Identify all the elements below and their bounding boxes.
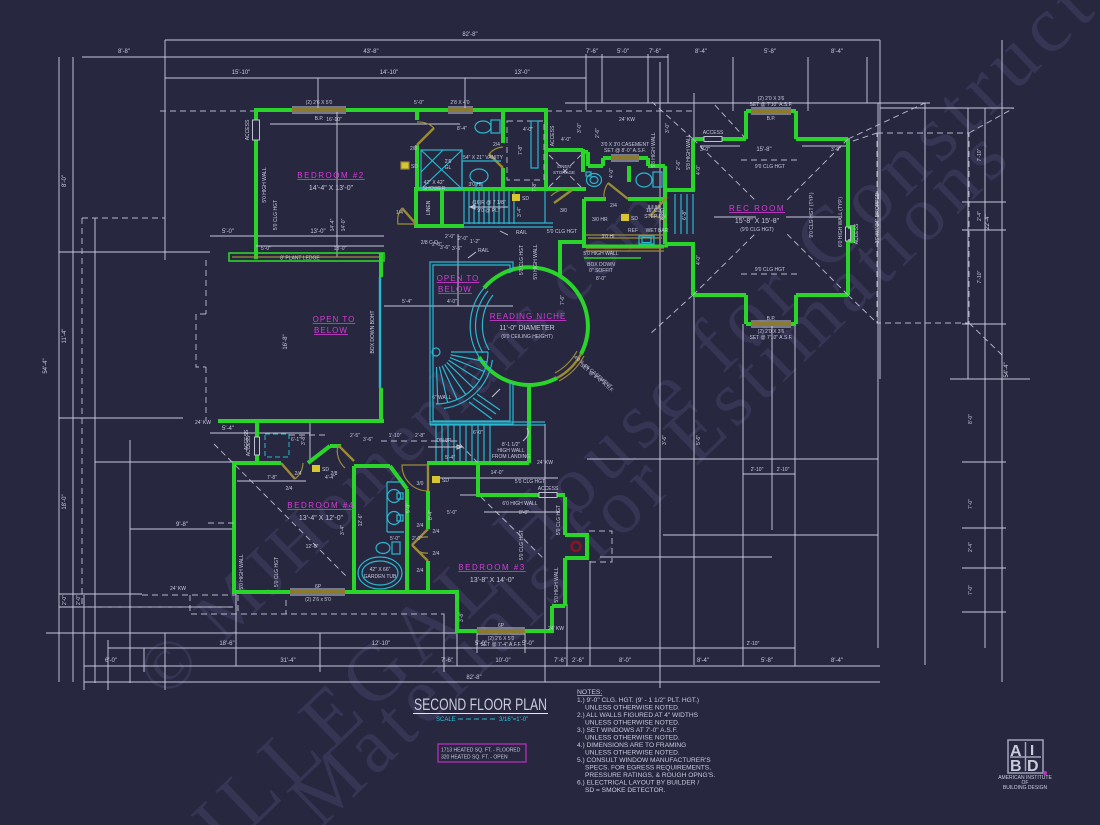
svg-text:(2) 2'6 X 5'0: (2) 2'6 X 5'0 (306, 100, 333, 106)
svg-text:7'-8": 7'-8" (267, 475, 277, 481)
svg-text:5'0 HIGH WALL: 5'0 HIGH WALL (533, 244, 539, 279)
svg-text:13'-4" X 12'-0": 13'-4" X 12'-0" (299, 515, 344, 522)
svg-text:11'-4": 11'-4" (62, 329, 68, 344)
svg-text:4'-0": 4'-0" (561, 137, 571, 143)
svg-text:8'-8": 8'-8" (519, 510, 529, 516)
svg-text:7'-8": 7'-8" (532, 182, 538, 192)
svg-text:7'-6": 7'-6" (649, 49, 661, 55)
svg-text:6'0 HIGH WALL: 6'0 HIGH WALL (502, 501, 537, 507)
svg-text:I: I (1030, 742, 1034, 759)
svg-text:5'0 CLG HGT: 5'0 CLG HGT (519, 530, 525, 560)
svg-text:1.) 9'-0" CLG. HGT. (9' - 1 1: 1.) 9'-0" CLG. HGT. (9' - 1 1/2" PLT. HG… (577, 697, 699, 704)
svg-text:B: B (1010, 758, 1022, 775)
svg-text:5'0 CLG HGT: 5'0 CLG HGT (273, 200, 279, 230)
svg-text:3/0 HR: 3/0 HR (592, 217, 608, 223)
svg-text:3'-6": 3'-6" (363, 437, 373, 443)
svg-text:UNLESS OTHERWISE NOTED.: UNLESS OTHERWISE NOTED. (585, 750, 680, 757)
svg-text:ACCESS: ACCESS (245, 119, 251, 140)
svg-text:4.) DIMENSIONS ARE TO FRAMING: 4.) DIMENSIONS ARE TO FRAMING (577, 742, 686, 749)
svg-text:(2) 2'6 x 5'0: (2) 2'6 x 5'0 (305, 597, 331, 603)
svg-text:7'-10": 7'-10" (977, 270, 983, 283)
svg-text:6'0 HIGH WALL (TYP.): 6'0 HIGH WALL (TYP.) (838, 197, 844, 248)
svg-text:5'0 CLG HGT: 5'0 CLG HGT (515, 479, 545, 485)
svg-text:7'-6": 7'-6" (586, 49, 598, 55)
svg-text:BELOW: BELOW (438, 285, 472, 294)
svg-text:(9'0 CLG HGT): (9'0 CLG HGT) (740, 227, 774, 233)
svg-text:24' KW: 24' KW (195, 420, 211, 426)
svg-text:2'-5": 2'-5" (350, 433, 360, 439)
svg-text:2'-6": 2'-6" (676, 160, 682, 170)
svg-text:WET BAR: WET BAR (646, 228, 669, 234)
svg-text:1713 HEATED SQ. FT. - FLOORED: 1713 HEATED SQ. FT. - FLOORED (441, 748, 521, 754)
svg-text:13'-0": 13'-0" (514, 70, 529, 76)
svg-text:SET @ 7'-4" A.F.F.: SET @ 7'-4" A.F.F. (480, 642, 521, 648)
svg-text:SD: SD (322, 467, 329, 473)
svg-text:5'0 HIGH WALL: 5'0 HIGH WALL (262, 167, 268, 202)
svg-text:82'-8": 82'-8" (466, 675, 481, 681)
svg-text:UNLESS OTHERWISE NOTED.: UNLESS OTHERWISE NOTED. (585, 735, 680, 742)
svg-text:GARDEN TUB: GARDEN TUB (364, 574, 397, 580)
svg-text:5'0 HIGH WALL: 5'0 HIGH WALL (554, 567, 560, 602)
svg-text:10'-0": 10'-0" (495, 658, 510, 664)
svg-text:9'-8": 9'-8" (176, 522, 188, 528)
svg-text:6P: 6P (315, 584, 322, 590)
svg-text:9'0 CLG HGT (TYP.): 9'0 CLG HGT (TYP.) (809, 192, 815, 238)
svg-text:1'-2": 1'-2" (470, 239, 480, 245)
svg-text:11'-0" DIAMETER: 11'-0" DIAMETER (499, 325, 554, 332)
svg-text:3'-6": 3'-6" (662, 435, 668, 445)
svg-text:22'-4": 22'-4" (985, 214, 991, 229)
svg-text:2'-4": 2'-4" (977, 211, 983, 221)
svg-text:15'-10": 15'-10" (232, 70, 251, 76)
svg-text:2'-6": 2'-6" (572, 658, 584, 664)
svg-text:8'-4": 8'-4" (428, 510, 434, 520)
svg-text:6'-8": 6'-8" (682, 210, 688, 220)
svg-text:15'-8": 15'-8" (756, 147, 771, 153)
svg-text:5'0 CLG HGT: 5'0 CLG HGT (547, 229, 577, 235)
svg-text:82'-8": 82'-8" (462, 32, 477, 38)
svg-text:B.P.: B.P. (315, 116, 324, 122)
svg-text:LINEN: LINEN (557, 164, 570, 169)
svg-text:ACCESS: ACCESS (244, 429, 250, 450)
svg-text:4'-0": 4'-0" (447, 299, 457, 305)
svg-text:READING NICHE: READING NICHE (490, 312, 567, 321)
svg-text:3'-8": 3'-8" (459, 612, 465, 622)
svg-text:5'-0": 5'-0" (617, 49, 629, 55)
svg-text:7'-0": 7'-0" (968, 499, 974, 509)
svg-text:14'-10": 14'-10" (380, 70, 399, 76)
svg-text:8'-0": 8'-0" (619, 658, 631, 664)
svg-text:BUILDING DESIGN: BUILDING DESIGN (1003, 785, 1048, 791)
svg-text:6'-0": 6'-0" (105, 658, 117, 664)
svg-text:B.P.: B.P. (767, 116, 776, 122)
svg-text:14'-4" X 13'-0": 14'-4" X 13'-0" (309, 185, 354, 192)
svg-text:REC ROOM: REC ROOM (729, 204, 785, 213)
svg-text:SD = SMOKE DETECTOR.: SD = SMOKE DETECTOR. (585, 787, 665, 794)
svg-text:5'-4": 5'-4" (222, 426, 234, 432)
svg-text:2'-10": 2'-10" (751, 467, 764, 473)
svg-text:24' KW: 24' KW (170, 586, 186, 592)
svg-text:9'0 CLG HGT: 9'0 CLG HGT (755, 164, 785, 170)
svg-text:BELOW: BELOW (314, 326, 348, 335)
svg-text:12'-10": 12'-10" (372, 641, 391, 647)
svg-text:6" WALL: 6" WALL (432, 395, 452, 401)
svg-text:6'-1": 6'-1" (291, 437, 301, 443)
svg-text:8'-8": 8'-8" (118, 49, 130, 55)
svg-text:13'-0": 13'-0" (334, 246, 347, 252)
svg-text:ACCESS: ACCESS (703, 130, 724, 136)
svg-text:4'-0": 4'-0" (523, 127, 533, 133)
svg-text:2'8 X 4'0: 2'8 X 4'0 (450, 100, 469, 106)
svg-text:54'-4": 54'-4" (1004, 362, 1010, 377)
svg-text:0" SOFFIT: 0" SOFFIT (589, 268, 613, 274)
svg-text:SD: SD (442, 478, 449, 484)
svg-text:3'-8": 3'-8" (301, 435, 307, 445)
svg-text:3'0 HI: 3'0 HI (602, 234, 615, 240)
svg-text:SET @ 7'10" A.S.F.: SET @ 7'10" A.S.F. (749, 335, 792, 341)
svg-text:SD: SD (411, 164, 418, 170)
svg-text:BEDROOM #3: BEDROOM #3 (458, 563, 525, 572)
svg-text:14'-0": 14'-0" (491, 470, 504, 476)
svg-text:5'0 HIGH WALL: 5'0 HIGH WALL (583, 251, 618, 257)
svg-text:BEDROOM #2: BEDROOM #2 (297, 171, 364, 180)
svg-text:7'-6": 7'-6" (560, 295, 566, 305)
svg-text:OPEN TO: OPEN TO (437, 274, 480, 283)
svg-text:9'0 CLG HGT: 9'0 CLG HGT (755, 267, 785, 273)
svg-text:SCALE: SCALE (436, 717, 456, 723)
svg-text:12'-0": 12'-0" (306, 544, 319, 550)
svg-text:SD: SD (522, 196, 529, 202)
svg-text:OPEN TO: OPEN TO (313, 315, 356, 324)
svg-text:7'-0": 7'-0" (968, 585, 974, 595)
svg-text:2'-0": 2'-0" (76, 595, 82, 605)
svg-text:54'-4": 54'-4" (43, 358, 49, 373)
svg-text:B.P.: B.P. (767, 316, 776, 322)
svg-text:5'-4": 5'-4" (445, 455, 455, 461)
svg-text:SHOWER: SHOWER (423, 186, 446, 192)
svg-text:16'-10": 16'-10" (326, 117, 342, 123)
svg-text:UNLESS OTHERWISE NOTED.: UNLESS OTHERWISE NOTED. (585, 705, 680, 712)
svg-text:42" X 66": 42" X 66" (370, 567, 391, 573)
svg-text:8'-4": 8'-4" (831, 658, 843, 664)
svg-text:3.) SET WINDOWS AT 7'-0" A.S.F: 3.) SET WINDOWS AT 7'-0" A.S.F. (577, 727, 678, 734)
svg-text:ACCESS: ACCESS (550, 125, 556, 146)
svg-text:2'-6": 2'-6" (595, 128, 601, 138)
svg-text:5'-0": 5'-0" (522, 641, 534, 647)
svg-text:5'-6": 5'-6" (696, 435, 702, 445)
svg-text:14'-4": 14'-4" (330, 218, 336, 231)
svg-text:STORAGE: STORAGE (553, 170, 575, 175)
svg-text:2/4: 2/4 (433, 529, 440, 535)
svg-text:3'0 HI: 3'0 HI (469, 182, 482, 188)
svg-text:4'-0": 4'-0" (696, 165, 702, 175)
svg-text:24' KW: 24' KW (619, 117, 635, 123)
svg-text:2'-10": 2'-10" (747, 641, 760, 647)
svg-text:54" X 21" VANITY: 54" X 21" VANITY (463, 155, 504, 161)
svg-text:5'-0": 5'-0" (222, 229, 234, 235)
svg-text:6.) ELECTRICAL LAYOUT BY BUILD: 6.) ELECTRICAL LAYOUT BY BUILDER / (577, 780, 699, 787)
svg-text:REF: REF (628, 228, 638, 234)
svg-text:3'-0": 3'-0" (831, 147, 841, 153)
svg-text:8'-4": 8'-4" (831, 49, 843, 55)
svg-text:5'-0": 5'-0" (414, 100, 424, 106)
svg-text:24' KW: 24' KW (548, 626, 564, 632)
svg-text:14'-0": 14'-0" (341, 218, 347, 231)
svg-text:2/4: 2/4 (610, 203, 617, 209)
svg-text:9'0 @ PLT: 9'0 @ PLT (477, 208, 500, 214)
svg-text:2'-0": 2'-0" (432, 242, 442, 248)
svg-text:RAIL: RAIL (516, 230, 527, 236)
svg-text:RAIL: RAIL (478, 248, 489, 254)
svg-text:320 HEATED SQ. FT. - OPEN: 320 HEATED SQ. FT. - OPEN (441, 755, 508, 761)
svg-text:2'-10": 2'-10" (777, 467, 790, 473)
svg-text:5'-0": 5'-0" (447, 510, 457, 516)
svg-text:18'-6": 18'-6" (219, 641, 234, 647)
svg-text:3'-0": 3'-0" (577, 123, 583, 133)
svg-text:3'-0": 3'-0" (700, 147, 710, 153)
svg-text:SPECS. FOR EGRESS REQUIREMENTS: SPECS. FOR EGRESS REQUIREMENTS, (585, 765, 711, 772)
svg-text:5'0 CLG HGT: 5'0 CLG HGT (519, 245, 525, 275)
svg-text:5'-0": 5'-0" (261, 246, 271, 252)
svg-text:7'-6": 7'-6" (441, 658, 453, 664)
svg-text:2/4: 2/4 (417, 523, 424, 529)
svg-text:16'-8": 16'-8" (283, 334, 289, 349)
svg-text:5'0 CLG HGT: 5'0 CLG HGT (556, 505, 562, 535)
svg-text:5'-8": 5'-8" (761, 658, 773, 664)
svg-text:(16)R @ 7 1/8": (16)R @ 7 1/8" (472, 200, 505, 206)
svg-text:8'-4": 8'-4" (457, 126, 467, 132)
svg-text:15'-8" X 15'-8": 15'-8" X 15'-8" (735, 218, 780, 225)
svg-text:5'0 CLG HGT: 5'0 CLG HGT (274, 557, 280, 587)
svg-text:5'-8": 5'-8" (764, 49, 776, 55)
svg-text:13'-8" X 14'-0": 13'-8" X 14'-0" (470, 577, 515, 584)
svg-text:5'0 HIGH WALL: 5'0 HIGH WALL (239, 554, 245, 589)
svg-text:8'-0": 8'-0" (596, 276, 606, 282)
svg-text:STEP DN: STEP DN (644, 214, 666, 220)
svg-text:43'-8": 43'-8" (363, 49, 378, 55)
svg-text:5'8 HIGH WALL: 5'8 HIGH WALL (686, 134, 692, 169)
svg-text:6'-0": 6'-0" (473, 430, 483, 436)
svg-text:7'-6": 7'-6" (554, 658, 566, 664)
svg-text:UNLESS OTHERWISE NOTED.: UNLESS OTHERWISE NOTED. (585, 720, 680, 727)
svg-text:3'-6": 3'-6" (452, 246, 462, 252)
svg-text:BOX DOWN BOHT: BOX DOWN BOHT (370, 310, 376, 353)
svg-text:FROM LANDING: FROM LANDING (492, 454, 530, 460)
svg-text:3/16"=1'-0": 3/16"=1'-0" (499, 717, 528, 723)
svg-text:2'-8": 2'-8" (415, 433, 425, 439)
svg-text:BEDROOM #4: BEDROOM #4 (287, 501, 354, 510)
svg-text:7'-10": 7'-10" (977, 148, 983, 161)
svg-text:PRESSURE RATINGS, & ROUGH OPNG: PRESSURE RATINGS, & ROUGH OPNG'S. (585, 772, 715, 779)
svg-text:5'-0": 5'-0" (390, 536, 400, 542)
svg-text:8'-0": 8'-0" (968, 414, 974, 424)
svg-text:5'-4": 5'-4" (402, 299, 412, 305)
svg-text:5.) CONSULT WINDOW MANUFACTURE: 5.) CONSULT WINDOW MANUFACTURER'S (577, 757, 711, 764)
svg-text:31'-4": 31'-4" (280, 658, 295, 664)
svg-text:SD: SD (631, 216, 638, 222)
svg-text:ACCESS: ACCESS (854, 223, 860, 244)
svg-text:D: D (1027, 758, 1039, 775)
svg-text:SECOND FLOOR PLAN: SECOND FLOOR PLAN (414, 696, 547, 714)
svg-text:8'-4": 8'-4" (697, 658, 709, 664)
svg-text:ACCESS: ACCESS (538, 486, 559, 492)
svg-text:GL: GL (445, 165, 452, 171)
svg-text:NOTES:: NOTES: (577, 689, 602, 696)
svg-text:2/4: 2/4 (433, 551, 440, 557)
svg-text:2/8: 2/8 (410, 146, 417, 152)
svg-text:3/0: 3/0 (560, 208, 567, 214)
svg-text:3'-4": 3'-4" (517, 207, 523, 217)
svg-text:1/4: 1/4 (396, 210, 403, 216)
svg-text:2/4: 2/4 (493, 142, 500, 148)
svg-text:2'-0": 2'-0" (412, 536, 422, 542)
svg-text:3'-4": 3'-4" (340, 525, 346, 535)
svg-text:2'-0": 2'-0" (62, 595, 68, 605)
svg-text:3/0: 3/0 (417, 481, 424, 487)
svg-text:2'-0": 2'-0" (445, 234, 455, 240)
svg-text:18'-0": 18'-0" (62, 494, 68, 509)
svg-text:SET @ 8'-0" A.S.F.: SET @ 8'-0" A.S.F. (604, 148, 646, 154)
svg-text:2/4: 2/4 (286, 486, 293, 492)
svg-text:2/4: 2/4 (417, 568, 424, 574)
svg-text:3'-0": 3'-0" (665, 123, 671, 133)
svg-text:2.) ALL WALLS FIGURED AT 4" W: 2.) ALL WALLS FIGURED AT 4" WIDTHS (577, 712, 699, 719)
svg-text:4'-0": 4'-0" (696, 255, 702, 265)
svg-text:(9'0 CEILING HEIGHT): (9'0 CEILING HEIGHT) (501, 334, 553, 340)
svg-text:5'8 HIGH WALL: 5'8 HIGH WALL (651, 132, 657, 167)
svg-text:4'-4": 4'-4" (325, 475, 335, 481)
svg-text:7'-8": 7'-8" (518, 145, 524, 155)
svg-text:12'-6": 12'-6" (358, 513, 364, 526)
svg-text:24' KW: 24' KW (537, 460, 553, 466)
svg-text:5'-0": 5'-0" (406, 503, 412, 513)
svg-text:4'-0": 4'-0" (609, 168, 615, 178)
svg-text:1'-10": 1'-10" (389, 433, 402, 439)
svg-text:2'-0": 2'-0" (458, 236, 468, 242)
svg-text:8'-0": 8'-0" (62, 175, 68, 187)
svg-text:6P: 6P (498, 623, 505, 629)
svg-text:8'-4": 8'-4" (695, 49, 707, 55)
svg-text:2'-4": 2'-4" (968, 542, 974, 552)
svg-text:SET @ 7'10" A.S.F.: SET @ 7'10" A.S.F. (749, 102, 792, 108)
svg-text:13'-0": 13'-0" (310, 229, 325, 235)
svg-text:8' PLANT LEDGE: 8' PLANT LEDGE (280, 256, 320, 262)
svg-text:LINEN: LINEN (426, 200, 432, 215)
svg-text:2/4: 2/4 (295, 471, 302, 477)
